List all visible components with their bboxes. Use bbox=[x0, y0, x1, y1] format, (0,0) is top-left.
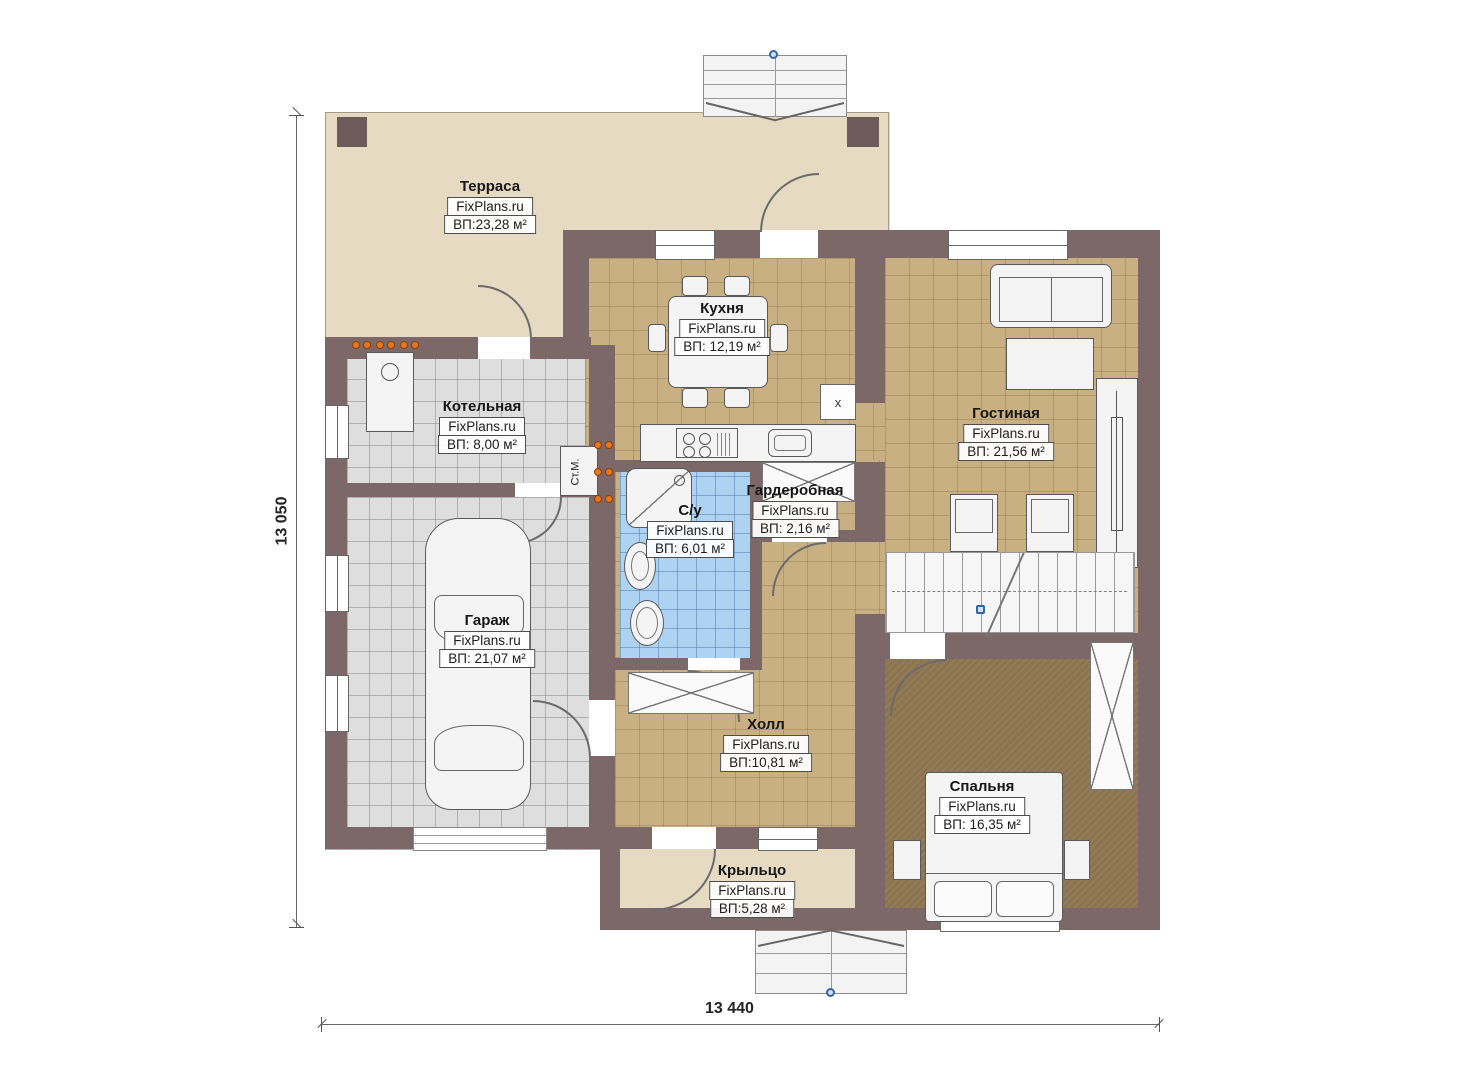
room-name: Котельная bbox=[443, 398, 522, 415]
shower-head-icon bbox=[674, 475, 685, 486]
wall-terrace-kitchen bbox=[563, 230, 589, 345]
pillow bbox=[934, 881, 992, 917]
steps-marker-bottom bbox=[826, 988, 835, 997]
appliance-box: х bbox=[820, 384, 856, 420]
kitchen-counter bbox=[640, 424, 856, 462]
toilet bbox=[630, 600, 664, 646]
terrace-post-left bbox=[337, 117, 367, 147]
terrace-steps bbox=[703, 55, 847, 117]
stove-icon bbox=[676, 428, 738, 458]
room-name: Холл bbox=[747, 716, 785, 733]
dining-chair bbox=[724, 276, 750, 296]
nightstand bbox=[893, 840, 921, 880]
hall-closet bbox=[628, 672, 754, 714]
door-opening-kitchen-terrace bbox=[760, 230, 818, 258]
tv-icon bbox=[1111, 417, 1123, 531]
boiler-pipe-icon bbox=[381, 363, 399, 381]
room-name: Крыльцо bbox=[718, 862, 786, 879]
window-kitchen-top bbox=[655, 230, 715, 260]
appliance-x-label: х bbox=[835, 395, 842, 410]
brand-watermark: FixPlans.ru bbox=[939, 797, 1025, 816]
wall-hall-porch bbox=[615, 827, 855, 849]
wall-wardrobe-right bbox=[855, 462, 885, 542]
washing-machine-label: Ст.М. bbox=[570, 458, 582, 485]
room-label-bedroom: Спальня FixPlans.ru ВП: 16,35 м² bbox=[934, 778, 1030, 834]
room-area: ВП: 12,19 м² bbox=[674, 337, 770, 356]
wall-top-exterior bbox=[563, 230, 1160, 258]
room-area: ВП: 21,56 м² bbox=[958, 442, 1054, 461]
room-area: ВП: 16,35 м² bbox=[934, 815, 1030, 834]
dining-chair bbox=[682, 388, 708, 408]
window-hall-porch bbox=[758, 827, 818, 851]
pillow bbox=[996, 881, 1054, 917]
window-garage-left-2 bbox=[325, 675, 349, 732]
room-label-garage: Гараж FixPlans.ru ВП: 21,07 м² bbox=[439, 612, 535, 668]
wall-boiler-garage-left bbox=[347, 483, 515, 497]
brand-watermark: FixPlans.ru bbox=[723, 735, 809, 754]
dimension-line-bottom bbox=[322, 1024, 1160, 1025]
window-garage-left-1 bbox=[325, 555, 349, 612]
wall-center-vertical bbox=[589, 345, 615, 849]
window-living-top bbox=[948, 230, 1068, 260]
coffee-table bbox=[1006, 338, 1094, 390]
room-area: ВП: 6,01 м² bbox=[646, 539, 734, 558]
radiator-icon bbox=[376, 341, 395, 349]
terrace-post-right bbox=[847, 117, 879, 147]
wall-hall-bedroom bbox=[855, 614, 885, 930]
staircase bbox=[885, 552, 1135, 633]
brand-watermark: FixPlans.ru bbox=[444, 631, 530, 650]
kitchen-sink bbox=[768, 429, 812, 457]
door-opening-bathroom bbox=[688, 658, 740, 670]
steps-arrow bbox=[829, 929, 904, 947]
brand-watermark: FixPlans.ru bbox=[963, 424, 1049, 443]
room-label-boiler: Котельная FixPlans.ru ВП: 8,00 м² bbox=[438, 398, 526, 454]
dining-chair bbox=[770, 324, 788, 352]
room-name: С/у bbox=[678, 502, 701, 519]
wall-kitchen-living bbox=[855, 258, 885, 403]
radiator-icon bbox=[352, 341, 371, 349]
room-area: ВП:10,81 м² bbox=[720, 753, 812, 772]
terrace-edge-left bbox=[325, 112, 326, 340]
brand-watermark: FixPlans.ru bbox=[439, 417, 525, 436]
stair-marker bbox=[976, 605, 985, 614]
door-opening-hall-porch bbox=[652, 827, 716, 849]
room-label-hall: Холл FixPlans.ru ВП:10,81 м² bbox=[720, 716, 812, 772]
dimension-line-left bbox=[296, 116, 297, 928]
porch-steps bbox=[755, 930, 907, 994]
radiator-icon bbox=[594, 495, 613, 503]
dining-chair bbox=[648, 324, 666, 352]
door-opening-terrace-boiler bbox=[478, 337, 530, 359]
window-boiler-left bbox=[325, 405, 349, 459]
room-name: Гараж bbox=[465, 612, 510, 629]
room-area: ВП: 2,16 м² bbox=[751, 519, 839, 538]
brand-watermark: FixPlans.ru bbox=[752, 501, 838, 520]
stair-direction-line bbox=[892, 591, 1127, 592]
dining-chair bbox=[724, 388, 750, 408]
radiator-icon bbox=[594, 441, 613, 449]
armchair bbox=[1026, 494, 1074, 552]
brand-watermark: FixPlans.ru bbox=[447, 197, 533, 216]
room-label-bathroom: С/у FixPlans.ru ВП: 6,01 м² bbox=[646, 502, 734, 558]
room-area: ВП:23,28 м² bbox=[444, 215, 536, 234]
door-opening-hall-bedroom bbox=[890, 633, 945, 659]
room-area: ВП: 21,07 м² bbox=[439, 649, 535, 668]
floor-plan: х Ст.М. bbox=[0, 0, 1474, 1080]
room-label-terrace: Терраса FixPlans.ru ВП:23,28 м² bbox=[444, 178, 536, 234]
radiator-icon bbox=[400, 341, 419, 349]
steps-marker-top bbox=[769, 50, 778, 59]
door-opening-boiler-garage bbox=[515, 483, 560, 497]
brand-watermark: FixPlans.ru bbox=[709, 881, 795, 900]
room-area: ВП: 8,00 м² bbox=[438, 435, 526, 454]
wall-garage-bottom-right bbox=[545, 827, 615, 849]
bedroom-closet bbox=[1090, 642, 1134, 790]
steps-arrow bbox=[758, 929, 833, 947]
boiler-unit bbox=[366, 352, 414, 432]
room-name: Гостиная bbox=[972, 405, 1040, 422]
radiator-icon bbox=[594, 468, 613, 476]
room-label-porch: Крыльцо FixPlans.ru ВП:5,28 м² bbox=[709, 862, 795, 918]
door-opening-garage-hall bbox=[589, 700, 615, 756]
room-label-living: Гостиная FixPlans.ru ВП: 21,56 м² bbox=[958, 405, 1054, 461]
brand-watermark: FixPlans.ru bbox=[679, 319, 765, 338]
garage-door bbox=[413, 827, 547, 851]
room-name: Гардеробная bbox=[746, 482, 843, 499]
terrace-edge-right bbox=[888, 112, 889, 232]
room-label-kitchen: Кухня FixPlans.ru ВП: 12,19 м² bbox=[674, 300, 770, 356]
car-rear-window bbox=[434, 725, 524, 771]
room-name: Терраса bbox=[460, 178, 520, 195]
terrace-floor-lower bbox=[325, 233, 591, 343]
room-name: Кухня bbox=[700, 300, 744, 317]
dimension-label-bottom: 13 440 bbox=[705, 1000, 754, 1018]
armchair bbox=[950, 494, 998, 552]
brand-watermark: FixPlans.ru bbox=[647, 521, 733, 540]
dimension-label-left: 13 050 bbox=[273, 497, 291, 546]
nightstand bbox=[1064, 840, 1090, 880]
wall-garage-bottom-left bbox=[325, 827, 413, 849]
dining-chair bbox=[682, 276, 708, 296]
sofa bbox=[990, 264, 1112, 328]
room-area: ВП:5,28 м² bbox=[710, 899, 794, 918]
stair-break-line bbox=[985, 553, 1024, 638]
room-label-wardrobe: Гардеробная FixPlans.ru ВП: 2,16 м² bbox=[746, 482, 843, 538]
wall-right-exterior bbox=[1138, 230, 1160, 930]
tv-stand bbox=[1096, 378, 1138, 568]
room-name: Спальня bbox=[950, 778, 1015, 795]
